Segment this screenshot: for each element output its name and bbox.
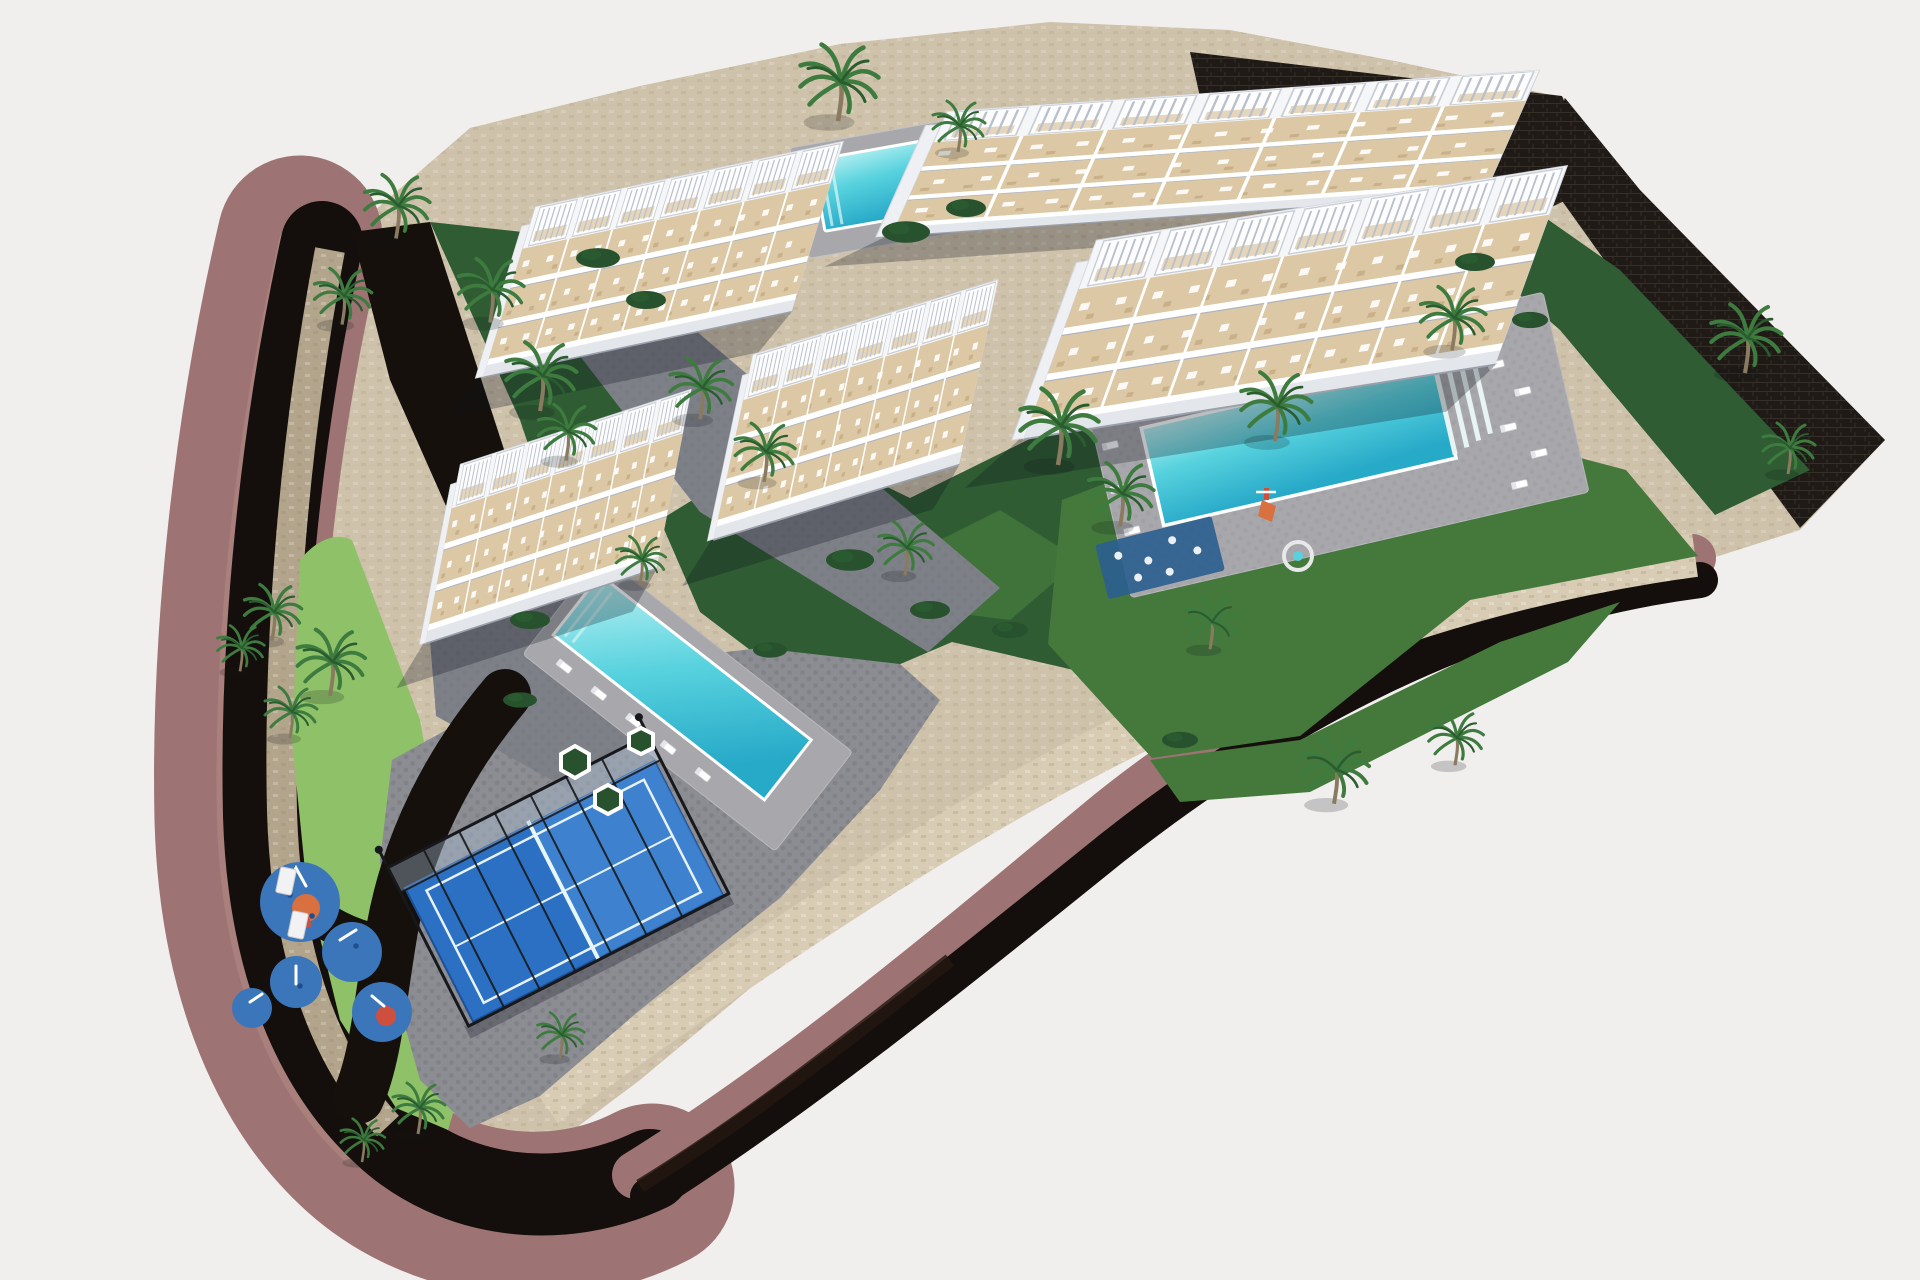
site-plan-rendering — [0, 0, 1920, 1280]
rendering-canvas: Aerial 3D architectural rendering of a t… — [0, 0, 1920, 1280]
play-pad — [232, 988, 272, 1028]
